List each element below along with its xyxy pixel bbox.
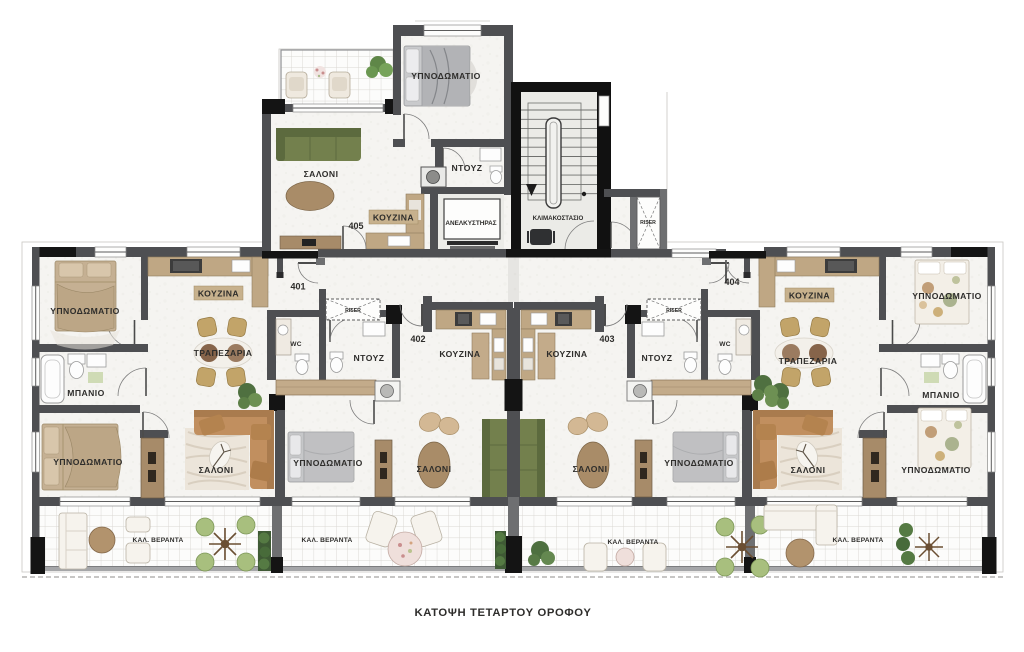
svg-text:RISER: RISER bbox=[640, 220, 656, 226]
svg-text:ΚΑΛ. ΒΕΡΑΝΤΑ: ΚΑΛ. ΒΕΡΑΝΤΑ bbox=[833, 537, 884, 544]
svg-text:ΣΑΛΟΝΙ: ΣΑΛΟΝΙ bbox=[199, 465, 234, 475]
svg-text:ΝΤΟΥΖ: ΝΤΟΥΖ bbox=[642, 353, 673, 363]
svg-text:ΚΑΛ. ΒΕΡΑΝΤΑ: ΚΑΛ. ΒΕΡΑΝΤΑ bbox=[302, 537, 353, 544]
svg-text:ΚΟΥΖΙΝΑ: ΚΟΥΖΙΝΑ bbox=[373, 213, 414, 223]
svg-text:ΝΤΟΥΖ: ΝΤΟΥΖ bbox=[354, 353, 385, 363]
svg-text:ΣΑΛΟΝΙ: ΣΑΛΟΝΙ bbox=[573, 464, 608, 474]
svg-text:ΣΑΛΟΝΙ: ΣΑΛΟΝΙ bbox=[791, 465, 826, 475]
svg-text:ΥΠΝΟΔΩΜΑΤΙΟ: ΥΠΝΟΔΩΜΑΤΙΟ bbox=[411, 71, 481, 81]
svg-text:405: 405 bbox=[348, 221, 363, 231]
svg-text:ΚΟΥΖΙΝΑ: ΚΟΥΖΙΝΑ bbox=[546, 349, 587, 359]
svg-text:ΚΑΛ. ΒΕΡΑΝΤΑ: ΚΑΛ. ΒΕΡΑΝΤΑ bbox=[608, 539, 659, 546]
svg-text:401: 401 bbox=[290, 282, 305, 292]
svg-text:ΣΑΛΟΝΙ: ΣΑΛΟΝΙ bbox=[417, 464, 452, 474]
svg-text:ΚΟΥΖΙΝΑ: ΚΟΥΖΙΝΑ bbox=[789, 291, 830, 301]
svg-text:ΑΝΕΛΚΥΣΤΗΡΑΣ: ΑΝΕΛΚΥΣΤΗΡΑΣ bbox=[445, 220, 496, 227]
svg-text:ΚΑΛ. ΒΕΡΑΝΤΑ: ΚΑΛ. ΒΕΡΑΝΤΑ bbox=[133, 537, 184, 544]
svg-text:ΣΑΛΟΝΙ: ΣΑΛΟΝΙ bbox=[304, 169, 339, 179]
svg-text:ΚΛΙΜΑΚΟΣΤΑΣΙΟ: ΚΛΙΜΑΚΟΣΤΑΣΙΟ bbox=[533, 215, 584, 222]
svg-text:ΝΤΟΥΖ: ΝΤΟΥΖ bbox=[452, 163, 483, 173]
svg-text:RISER: RISER bbox=[345, 308, 361, 314]
svg-text:ΚΟΥΖΙΝΑ: ΚΟΥΖΙΝΑ bbox=[439, 349, 480, 359]
svg-text:ΥΠΝΟΔΩΜΑΤΙΟ: ΥΠΝΟΔΩΜΑΤΙΟ bbox=[293, 458, 363, 468]
svg-text:404: 404 bbox=[724, 277, 739, 287]
svg-text:ΜΠΑΝΙΟ: ΜΠΑΝΙΟ bbox=[67, 388, 105, 398]
svg-text:ΤΡΑΠΕΖΑΡΙΑ: ΤΡΑΠΕΖΑΡΙΑ bbox=[194, 348, 253, 358]
svg-text:403: 403 bbox=[599, 334, 614, 344]
svg-text:WC: WC bbox=[290, 341, 301, 348]
svg-text:402: 402 bbox=[410, 334, 425, 344]
svg-text:RISER: RISER bbox=[666, 308, 682, 314]
svg-text:ΥΠΝΟΔΩΜΑΤΙΟ: ΥΠΝΟΔΩΜΑΤΙΟ bbox=[912, 291, 982, 301]
svg-text:ΥΠΝΟΔΩΜΑΤΙΟ: ΥΠΝΟΔΩΜΑΤΙΟ bbox=[664, 458, 734, 468]
svg-text:ΥΠΝΟΔΩΜΑΤΙΟ: ΥΠΝΟΔΩΜΑΤΙΟ bbox=[901, 465, 971, 475]
svg-text:ΥΠΝΟΔΩΜΑΤΙΟ: ΥΠΝΟΔΩΜΑΤΙΟ bbox=[53, 457, 123, 467]
svg-text:ΚΟΥΖΙΝΑ: ΚΟΥΖΙΝΑ bbox=[198, 289, 239, 299]
svg-text:WC: WC bbox=[719, 341, 730, 348]
svg-text:ΥΠΝΟΔΩΜΑΤΙΟ: ΥΠΝΟΔΩΜΑΤΙΟ bbox=[50, 306, 120, 316]
svg-text:ΤΡΑΠΕΖΑΡΙΑ: ΤΡΑΠΕΖΑΡΙΑ bbox=[779, 356, 838, 366]
svg-text:ΚΑΤΟΨΗ ΤΕΤΑΡΤΟΥ ΟΡΟΦΟΥ: ΚΑΤΟΨΗ ΤΕΤΑΡΤΟΥ ΟΡΟΦΟΥ bbox=[415, 607, 592, 619]
svg-text:ΜΠΑΝΙΟ: ΜΠΑΝΙΟ bbox=[922, 390, 960, 400]
